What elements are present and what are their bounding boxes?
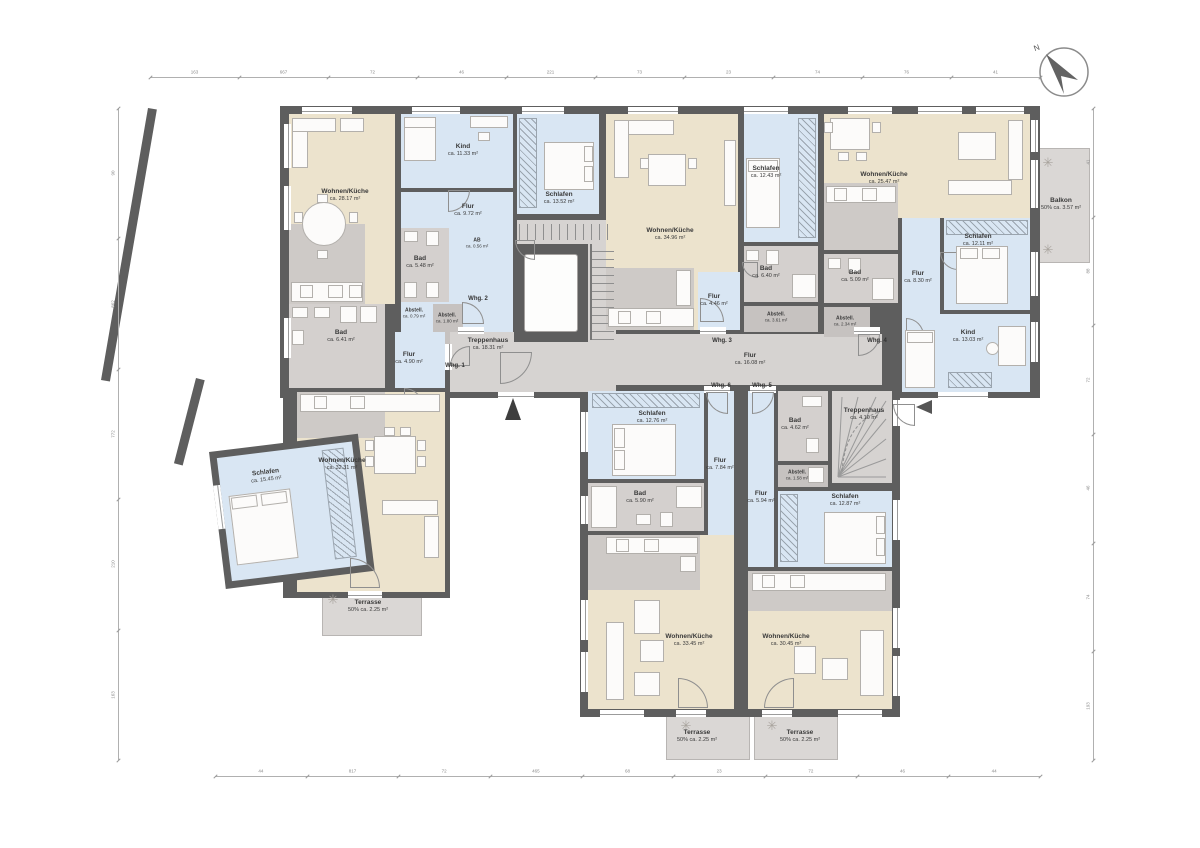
dimension-label: 72 (808, 769, 813, 774)
window (581, 652, 588, 692)
furniture (614, 428, 625, 448)
room-name: Flur (747, 490, 775, 498)
furniture (292, 118, 336, 132)
furniture (872, 278, 894, 300)
room-area: ca. 9.72 m² (454, 211, 482, 218)
room-name: Kind (953, 329, 984, 337)
wardrobe (780, 494, 798, 562)
winder-stair (832, 391, 892, 483)
window (600, 710, 644, 717)
furniture (426, 282, 439, 298)
window (854, 327, 880, 334)
room-name: Flur (700, 293, 728, 301)
dimension-label: 90 (111, 171, 116, 176)
furniture (591, 486, 617, 528)
furniture (790, 575, 805, 588)
dimension-label: 163 (111, 691, 116, 699)
furniture (724, 140, 736, 206)
room-area: ca. 1.80 m² (436, 318, 459, 323)
room-label-whg2-bad: Badca. 5.48 m² (406, 255, 434, 269)
room-flur-whg5 (748, 391, 774, 567)
dimension-label: 862 (111, 300, 116, 308)
furniture (876, 516, 885, 534)
unit-door-label-whg4: Whg. 4 (867, 338, 887, 344)
dimension-tick (1038, 774, 1042, 778)
room-label-whg3-abstell: Abstell.ca. 3.61 m² (765, 311, 788, 322)
room-name: Schlafen (751, 165, 782, 173)
dimension-label: 221 (547, 70, 555, 75)
furniture (292, 330, 304, 345)
furniture (634, 600, 660, 634)
wardrobe (948, 372, 992, 388)
tree-icon: ✳ (1043, 242, 1054, 258)
wardrobe (592, 393, 700, 408)
room-name: Terrasse (348, 599, 388, 607)
room-area: ca. 11.33 m² (448, 151, 478, 158)
dimension-label: 46 (900, 769, 905, 774)
room-label-whg6-bad: Badca. 5.90 m² (626, 490, 654, 504)
room-label-corridor: Flurca. 16.08 m² (735, 352, 766, 366)
furniture (1008, 120, 1023, 180)
window (893, 656, 900, 696)
window (581, 496, 588, 524)
room-label-whg2-kind: Kindca. 11.33 m² (448, 143, 478, 157)
room-label-whg2-wohnkueche: Wohnen/Kücheca. 28.17 m² (321, 188, 368, 202)
room-area: ca. 13.52 m² (544, 199, 575, 206)
room-area: ca. 0.56 m² (466, 243, 489, 248)
dimension-label: 23 (717, 769, 722, 774)
room-label-whg3-flur: Flurca. 4.46 m² (700, 293, 728, 307)
room-label-whg4-flur: Flurca. 8.30 m² (904, 270, 932, 284)
room-label-whg6-schlafen: Schlafenca. 12.76 m² (637, 410, 668, 424)
room-label-whg3-bad: Badca. 6.40 m² (752, 265, 780, 279)
room-label-whg3-wohnkueche: Wohnen/Kücheca. 34.96 m² (646, 227, 693, 241)
window (762, 710, 792, 717)
furniture (616, 539, 629, 552)
furniture (860, 630, 884, 696)
room-name: Terrasse (780, 729, 820, 737)
room-area: ca. 12.87 m² (830, 501, 861, 508)
room-name: Wohnen/Küche (762, 633, 809, 641)
furniture (907, 332, 933, 343)
room-label-treppenhaus: Treppenhausca. 18.31 m² (468, 337, 508, 351)
dimension-label: 163 (191, 70, 199, 75)
dimension-label: 772 (111, 430, 116, 438)
unit-door-label-whg3: Whg. 3 (712, 338, 732, 344)
room-area: ca. 6.40 m² (752, 273, 780, 280)
furniture (360, 306, 377, 323)
furniture (317, 250, 328, 259)
room-name: Bad (781, 417, 809, 425)
room-area: ca. 4.90 m² (395, 359, 423, 366)
window (838, 710, 882, 717)
furniture (470, 116, 508, 128)
dimension-label: 41 (1086, 160, 1091, 165)
room-area: ca. 0.79 m² (403, 313, 426, 318)
room-name: Bad (752, 265, 780, 273)
furniture (822, 658, 848, 680)
table (986, 342, 999, 355)
room-label-whg4-bad: Badca. 5.09 m² (841, 269, 869, 283)
room-name: Bad (406, 255, 434, 263)
room-label-whg2-abstell: Abstell.ca. 1.80 m² (436, 312, 459, 323)
window (700, 327, 726, 334)
room-name: Wohnen/Küche (318, 457, 365, 465)
exit-arrow-icon (916, 400, 932, 414)
furniture (404, 282, 417, 298)
window (284, 186, 291, 230)
room-name: Schlafen (544, 191, 575, 199)
furniture (644, 539, 659, 552)
dimension-label: 46 (459, 70, 464, 75)
furniture (680, 556, 696, 572)
furniture (792, 274, 816, 298)
furniture (417, 440, 426, 451)
furniture (676, 486, 702, 508)
room-area: ca. 30.45 m² (762, 641, 809, 648)
room-area: ca. 13.03 m² (953, 337, 984, 344)
room-label-whg5-schlafen: Schlafenca. 12.87 m² (830, 493, 861, 507)
window (1031, 252, 1038, 296)
room-name: Flur (735, 352, 766, 360)
furniture (998, 326, 1026, 366)
furniture (374, 436, 416, 474)
room-label-whg1-abstell: Abstell.ca. 0.79 m² (403, 307, 426, 318)
furniture (648, 154, 686, 186)
room-name: Wohnen/Küche (646, 227, 693, 235)
furniture (640, 640, 664, 662)
furniture (417, 456, 426, 467)
wardrobe (798, 118, 816, 238)
room-label-treppenhaus2: Treppenhausca. 4.10 m² (844, 407, 884, 421)
room-name: Terrasse (677, 729, 717, 737)
furniture (872, 122, 881, 133)
north-arrow-icon (1046, 54, 1078, 94)
room-label-whg1-flur: Flurca. 4.90 m² (395, 351, 423, 365)
window (1031, 322, 1038, 362)
furniture (349, 285, 362, 298)
room-name: Schlafen (637, 410, 668, 418)
furniture (478, 132, 490, 141)
room-area: ca. 1.58 m² (786, 475, 809, 480)
dimension-label: 210 (111, 561, 116, 569)
dimension-line (215, 776, 1040, 777)
room-name: Balkon (1041, 197, 1081, 205)
room-area: ca. 2.34 m² (834, 321, 857, 326)
window (744, 107, 788, 114)
furniture (958, 132, 996, 160)
window (848, 107, 892, 114)
stair-treads (519, 224, 614, 240)
north-label: N (1033, 43, 1042, 54)
furniture (802, 396, 822, 407)
room-label-whg1-terrasse: Terrasse50% ca. 2.25 m² (348, 599, 388, 613)
window (976, 107, 1024, 114)
furniture (982, 248, 1000, 259)
furniture (365, 456, 374, 467)
furniture (862, 188, 877, 201)
dimension-label: 68 (625, 769, 630, 774)
furniture (838, 152, 849, 161)
dimension-label: 88 (1086, 268, 1091, 273)
room-area: ca. 28.17 m² (321, 196, 368, 203)
furniture (806, 438, 819, 453)
room-label-whg5-terrasse: Terrasse50% ca. 2.25 m² (780, 729, 820, 743)
room-area: ca. 32.31 m² (318, 465, 365, 472)
room-label-whg2-ab: ABca. 0.56 m² (466, 237, 489, 248)
dimension-label: 193 (1086, 702, 1091, 710)
unit-door-label-whg5: Whg. 5 (752, 383, 772, 389)
furniture (614, 450, 625, 470)
dimension-label: 76 (904, 70, 909, 75)
furniture (314, 396, 327, 409)
dimension-label: 41 (993, 70, 998, 75)
window (893, 608, 900, 648)
furniture (404, 231, 418, 242)
room-label-whg4-wohnkueche: Wohnen/Kücheca. 25.47 m² (860, 171, 907, 185)
furniture (960, 248, 978, 259)
elevator-car (524, 254, 578, 332)
room-label-whg5-abstell: Abstell.ca. 1.58 m² (786, 469, 809, 480)
window (522, 107, 564, 114)
furniture (828, 258, 841, 269)
furniture (746, 250, 759, 261)
room-area: ca. 5.90 m² (626, 498, 654, 505)
north-compass: N (1028, 36, 1096, 104)
furniture (948, 180, 1012, 195)
furniture (584, 146, 593, 162)
furniture (424, 516, 439, 558)
furniture (614, 120, 629, 178)
entrance-arrow-icon (505, 398, 521, 420)
furniture (384, 427, 395, 436)
window (458, 327, 484, 334)
window (1031, 160, 1038, 208)
window (918, 107, 962, 114)
furniture (404, 117, 436, 128)
room-label-whg6-flur: Flurca. 7.84 m² (706, 457, 734, 471)
unit-door-label-whg6: Whg. 6 (711, 383, 731, 389)
room-label-whg5-flur: Flurca. 5.94 m² (747, 490, 775, 504)
dimension-label: 74 (1086, 594, 1091, 599)
boundary-wall-diagonal (101, 108, 157, 382)
furniture (365, 440, 374, 451)
room-area: ca. 7.84 m² (706, 465, 734, 472)
furniture (349, 212, 358, 223)
room-area: 50% ca. 2.25 m² (780, 737, 820, 744)
unit-door-label-whg2: Whg. 2 (468, 296, 488, 302)
furniture (762, 575, 775, 588)
window (581, 412, 588, 452)
room-name: Treppenhaus (468, 337, 508, 345)
room-label-whg1-wohnkueche: Wohnen/Kücheca. 32.31 m² (318, 457, 365, 471)
window (1031, 120, 1038, 152)
room-name: Schlafen (830, 493, 861, 501)
furniture (830, 118, 870, 150)
room-label-whg1-bad: Badca. 6.41 m² (327, 329, 355, 343)
furniture (646, 311, 661, 324)
room-label-whg4-abstell: Abstell.ca. 2.34 m² (834, 315, 857, 326)
dimension-label: 817 (349, 769, 357, 774)
room-label-whg5-bad: Badca. 4.62 m² (781, 417, 809, 431)
room-name: Flur (395, 351, 423, 359)
furniture (808, 467, 824, 483)
furniture (856, 152, 867, 161)
room-label-whg6-terrasse: Terrasse50% ca. 2.25 m² (677, 729, 717, 743)
room-name: Flur (904, 270, 932, 278)
furniture (350, 396, 365, 409)
furniture (676, 270, 691, 306)
room-name: Bad (327, 329, 355, 337)
furniture (688, 158, 697, 169)
dimension-label: 46 (1086, 486, 1091, 491)
room-name: Kind (448, 143, 478, 151)
room-label-whg3-schlafen: Schlafenca. 12.43 m² (751, 165, 782, 179)
room-name: Bad (841, 269, 869, 277)
furniture (660, 512, 673, 527)
furniture (834, 188, 847, 201)
furniture (292, 307, 308, 318)
room-area: ca. 33.45 m² (665, 641, 712, 648)
window (893, 500, 900, 540)
furniture (340, 306, 357, 323)
room-label-whg4-balkon: Balkon50% ca. 3.57 m² (1041, 197, 1081, 211)
room-label-whg2-flur: Flurca. 9.72 m² (454, 203, 482, 217)
window (284, 124, 291, 168)
furniture (640, 158, 649, 169)
tree-icon: ✳ (1043, 155, 1054, 171)
dimension-label: 73 (637, 70, 642, 75)
room-area: ca. 25.47 m² (860, 179, 907, 186)
dimension-tick (116, 758, 120, 762)
room-name: Bad (626, 490, 654, 498)
room-area: ca. 4.62 m² (781, 425, 809, 432)
room-area: ca. 6.41 m² (327, 337, 355, 344)
room-area: 50% ca. 3.57 m² (1041, 205, 1081, 212)
dimension-label: 74 (815, 70, 820, 75)
furniture (314, 307, 330, 318)
dimension-label: 72 (442, 769, 447, 774)
room-area: ca. 18.31 m² (468, 345, 508, 352)
window (628, 107, 678, 114)
room-label-whg5-wohnkueche: Wohnen/Kücheca. 30.45 m² (762, 633, 809, 647)
unit-door-label-whg1: Whg. 1 (445, 363, 465, 369)
room-area: ca. 8.30 m² (904, 278, 932, 285)
window (412, 107, 460, 114)
dimension-line (118, 108, 119, 760)
furniture (876, 538, 885, 556)
dimension-tick (1091, 758, 1095, 762)
furniture (300, 285, 313, 298)
furniture (824, 122, 833, 133)
window (938, 392, 988, 399)
room-name: Schlafen (963, 233, 993, 241)
dimension-label: 23 (726, 70, 731, 75)
tree-icon: ✳ (767, 718, 778, 734)
furniture (294, 212, 303, 223)
furniture (340, 118, 364, 132)
window (676, 710, 706, 717)
window (348, 591, 382, 598)
room-area: ca. 5.94 m² (747, 498, 775, 505)
room-area: ca. 34.96 m² (646, 235, 693, 242)
wardrobe (519, 118, 537, 208)
furniture (636, 514, 651, 525)
dimension-label: 667 (280, 70, 288, 75)
room-area: ca. 12.76 m² (637, 418, 668, 425)
furniture (328, 285, 343, 298)
room-area: ca. 5.09 m² (841, 277, 869, 284)
room-area: ca. 16.08 m² (735, 360, 766, 367)
room-name: Wohnen/Küche (321, 188, 368, 196)
stair-railing (590, 244, 592, 340)
room-label-whg2-schlafen: Schlafenca. 13.52 m² (544, 191, 575, 205)
window (581, 600, 588, 640)
furniture (766, 250, 779, 265)
room-area: ca. 3.61 m² (765, 317, 788, 322)
furniture (794, 646, 816, 674)
room-name: Flur (706, 457, 734, 465)
room-area: ca. 12.11 m² (963, 241, 993, 248)
room-label-whg6-wohnkueche: Wohnen/Kücheca. 33.45 m² (665, 633, 712, 647)
furniture (606, 622, 624, 700)
room-area: ca. 4.46 m² (700, 301, 728, 308)
room-label-whg4-kind: Kindca. 13.03 m² (953, 329, 984, 343)
room-name: Treppenhaus (844, 407, 884, 415)
room-label-whg4-schlafen: Schlafenca. 12.11 m² (963, 233, 993, 247)
table (302, 202, 346, 246)
room-area: 50% ca. 2.25 m² (348, 607, 388, 614)
furniture (426, 231, 439, 246)
room-area: ca. 12.43 m² (751, 173, 782, 180)
tree-icon: ✳ (328, 592, 339, 608)
furniture (618, 311, 631, 324)
furniture (584, 166, 593, 182)
room-name: Wohnen/Küche (665, 633, 712, 641)
furniture (400, 427, 411, 436)
window (284, 318, 291, 358)
boundary-wall-diagonal (174, 378, 205, 465)
dimension-label: 465 (532, 769, 540, 774)
room-area: ca. 5.48 m² (406, 263, 434, 270)
furniture (634, 672, 660, 696)
dimension-label: 72 (1086, 377, 1091, 382)
floor-plan: N ✳✳✳✳✳Wohnen/Kücheca. 28.17 m²Kindca. 1… (0, 0, 1200, 848)
room-name: Flur (454, 203, 482, 211)
dimension-label: 44 (258, 769, 263, 774)
furniture (382, 500, 438, 515)
room-area: 50% ca. 2.25 m² (677, 737, 717, 744)
dimension-label: 44 (992, 769, 997, 774)
room-name: Wohnen/Küche (860, 171, 907, 179)
room-area: ca. 4.10 m² (844, 415, 884, 422)
window (302, 107, 352, 114)
dimension-label: 72 (370, 70, 375, 75)
